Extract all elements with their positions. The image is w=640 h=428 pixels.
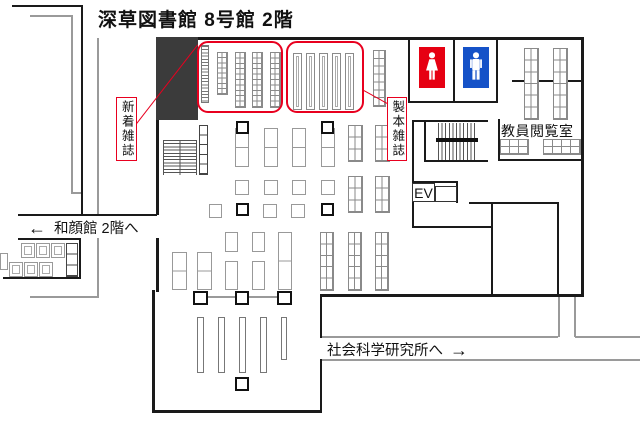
sign-to-wagankan: ← 和顔館 2階へ [28, 217, 139, 238]
table-with-seat-inner [12, 265, 20, 274]
table [225, 261, 238, 290]
table-with-seat [21, 243, 35, 258]
table [252, 261, 265, 290]
wall-line [491, 203, 493, 295]
wall-line [412, 226, 492, 228]
table-with-seat-inner [42, 265, 50, 274]
page-title: 深草図書館 8号館 2階 [98, 5, 294, 32]
wall-line [496, 37, 498, 103]
bookshelf-grid [500, 139, 529, 155]
label-faculty-reading-room: 教員閲覧室 [501, 121, 574, 141]
book-stack [239, 317, 246, 373]
wall-line [156, 37, 584, 40]
table [252, 232, 265, 252]
bookshelf-grid [375, 232, 389, 291]
sign-to-wagankan-text: 和顔館 2階へ [54, 217, 139, 238]
bookshelf-grid [348, 125, 363, 162]
stairwell-dark-block [156, 37, 198, 120]
bookshelf-grid [553, 48, 568, 120]
wall-line [322, 294, 584, 297]
pillar [236, 203, 249, 216]
wall-line [512, 80, 582, 82]
wall-line [3, 277, 81, 279]
table-with-seat [9, 262, 23, 277]
pillar [236, 121, 249, 134]
wall-line [581, 37, 584, 297]
pillar [235, 291, 249, 305]
pillar [235, 377, 249, 391]
right-arrow-icon: → [450, 341, 468, 359]
shelf-cells [66, 243, 78, 277]
wall-line [12, 5, 83, 7]
label-new-magazines: 新着雑誌 [116, 97, 137, 161]
wall-line [320, 359, 322, 412]
bookshelf-grid [348, 232, 362, 291]
table-with-seat [51, 243, 65, 258]
stair-landing [436, 138, 478, 142]
wall-line [408, 37, 410, 103]
wall-line [574, 297, 576, 337]
book-stack [197, 317, 204, 373]
table-with-seat-inner [39, 246, 47, 255]
wall-line [30, 296, 98, 298]
table [0, 253, 8, 270]
table-with-seat-inner [24, 246, 32, 255]
pillar [321, 203, 334, 216]
table [209, 204, 222, 218]
pillar [277, 291, 292, 305]
table-with-seat-inner [27, 265, 35, 274]
wall-line [97, 238, 99, 298]
wall-line [79, 238, 81, 279]
wall-line [412, 120, 414, 228]
wall-line [18, 238, 81, 240]
wall-line [424, 121, 426, 161]
table-with-seat [36, 243, 50, 258]
table-with-seat [39, 262, 53, 277]
table [225, 232, 238, 252]
wall-line [424, 160, 488, 162]
label-bound-magazines: 製本雑誌 [387, 97, 407, 161]
wall-line [152, 410, 322, 413]
wall-line [18, 214, 157, 216]
highlight-area [197, 41, 283, 113]
wall-line [81, 5, 83, 216]
wall-line [575, 336, 640, 338]
wall-line [498, 159, 584, 161]
reading-table [292, 128, 306, 167]
reading-table [264, 128, 278, 167]
reading-table [172, 252, 187, 290]
sign-to-social-science: 社会科学研究所へ → [327, 339, 468, 360]
wall-line [30, 15, 72, 17]
wall-line [469, 202, 559, 204]
wall-line [558, 297, 560, 337]
book-stack [281, 317, 287, 360]
staircase [163, 140, 197, 175]
pillar [321, 121, 334, 134]
wall-line [557, 203, 559, 295]
wall-line [97, 38, 99, 216]
highlight-area [286, 41, 364, 113]
book-stack [260, 317, 267, 373]
book-stack [218, 317, 225, 373]
elevator-box [435, 186, 457, 202]
table [235, 180, 249, 195]
female-icon [423, 51, 441, 84]
left-arrow-icon: ← [28, 219, 46, 237]
table [321, 180, 335, 195]
pillar [193, 291, 208, 305]
wall-line [152, 290, 155, 412]
wall-line [320, 294, 322, 338]
sign-to-social-science-text: 社会科学研究所へ [327, 339, 443, 360]
male-icon [467, 51, 485, 84]
wall-line [322, 336, 558, 338]
label-elevator: EV [412, 183, 435, 202]
male-restroom-sign [463, 47, 489, 88]
table-with-seat-inner [54, 246, 62, 255]
reading-table [197, 252, 212, 290]
table-with-seat [24, 262, 38, 277]
wall-line [156, 238, 159, 292]
reading-table [278, 232, 292, 290]
wall-line [71, 15, 73, 194]
wall-line [408, 101, 498, 103]
bookshelf-grid [348, 176, 363, 213]
bookshelf-grid [524, 48, 539, 120]
bookshelf-grid [375, 176, 390, 213]
table [292, 180, 306, 195]
table [291, 204, 305, 218]
table [264, 180, 278, 195]
female-restroom-sign [419, 47, 445, 88]
bookshelf-grid [543, 139, 581, 155]
bookshelf-grid [320, 232, 334, 291]
shelf-cells [199, 125, 208, 175]
table [263, 204, 277, 218]
wall-line [453, 37, 455, 103]
library-floor-map: 深草図書館 8号館 2階 新着雑誌 製本雑誌 教員閲覧室 EV ← 和顔館 2階… [0, 0, 640, 428]
